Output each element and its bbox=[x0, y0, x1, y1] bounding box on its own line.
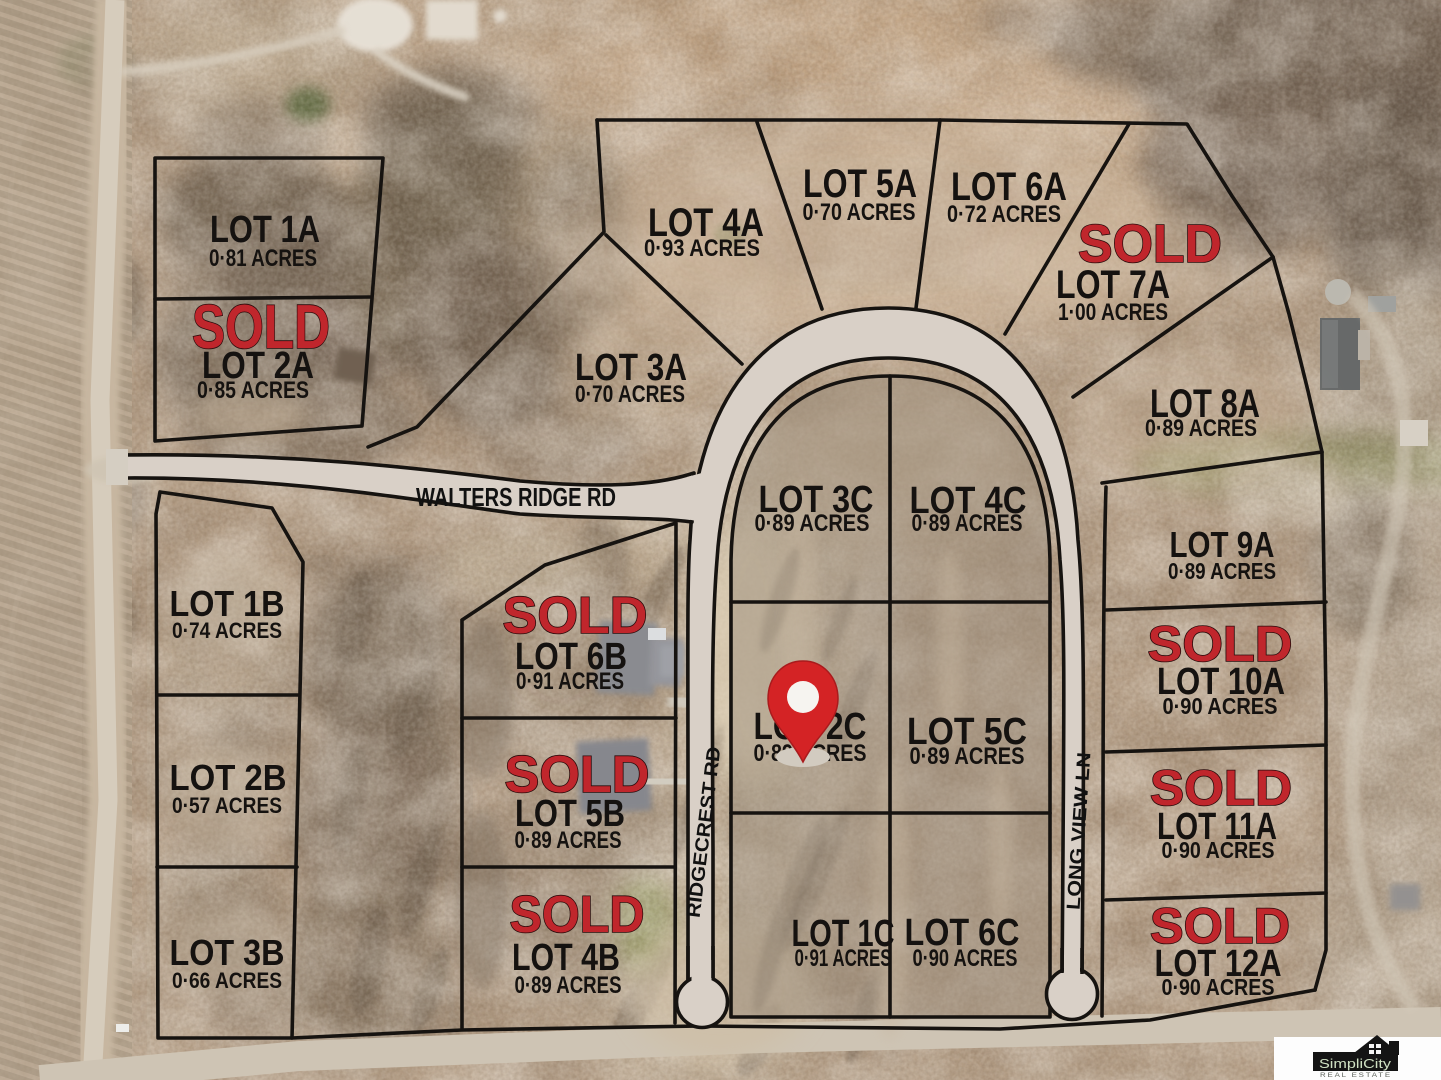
svg-text:0·90 ACRES: 0·90 ACRES bbox=[1162, 974, 1275, 1000]
svg-text:0·89 ACRES: 0·89 ACRES bbox=[910, 743, 1025, 770]
svg-text:0·91 ACRES: 0·91 ACRES bbox=[516, 668, 624, 695]
svg-text:SimpliCity: SimpliCity bbox=[1319, 1056, 1392, 1071]
svg-text:0·89 ACRES: 0·89 ACRES bbox=[515, 972, 622, 999]
svg-text:0·89 ACRES: 0·89 ACRES bbox=[1145, 415, 1257, 442]
svg-text:0·70 ACRES: 0·70 ACRES bbox=[803, 199, 916, 226]
svg-text:0·74 ACRES: 0·74 ACRES bbox=[172, 618, 282, 643]
svg-text:0·90 ACRES: 0·90 ACRES bbox=[913, 945, 1018, 972]
svg-text:LOT 2B: LOT 2B bbox=[170, 757, 287, 798]
svg-text:1·00 ACRES: 1·00 ACRES bbox=[1058, 299, 1168, 326]
svg-text:0·93 ACRES: 0·93 ACRES bbox=[644, 235, 760, 262]
svg-text:0·72 ACRES: 0·72 ACRES bbox=[947, 201, 1061, 228]
svg-text:0·57 ACRES: 0·57 ACRES bbox=[172, 793, 282, 818]
svg-text:0·81 ACRES: 0·81 ACRES bbox=[209, 245, 317, 272]
svg-text:0·89 ACRES: 0·89 ACRES bbox=[912, 510, 1023, 537]
svg-text:0·85 ACRES: 0·85 ACRES bbox=[197, 377, 309, 404]
svg-text:0·90 ACRES: 0·90 ACRES bbox=[1162, 837, 1275, 863]
svg-text:0·89 ACRES: 0·89 ACRES bbox=[515, 827, 622, 854]
svg-text:0·91 ACRES: 0·91 ACRES bbox=[795, 945, 892, 972]
svg-text:0·89 ACRES: 0·89 ACRES bbox=[755, 510, 870, 537]
svg-text:0·89 ACRES: 0·89 ACRES bbox=[1168, 558, 1276, 584]
svg-text:0·90 ACRES: 0·90 ACRES bbox=[1163, 693, 1278, 719]
svg-text:SOLD: SOLD bbox=[510, 886, 645, 944]
svg-text:WALTERS RIDGE RD: WALTERS RIDGE RD bbox=[416, 482, 616, 512]
svg-text:0·70 ACRES: 0·70 ACRES bbox=[575, 381, 685, 408]
svg-text:0·66 ACRES: 0·66 ACRES bbox=[172, 968, 282, 993]
svg-text:LOT 3B: LOT 3B bbox=[170, 932, 285, 973]
svg-text:REAL ESTATE: REAL ESTATE bbox=[1320, 1072, 1392, 1079]
